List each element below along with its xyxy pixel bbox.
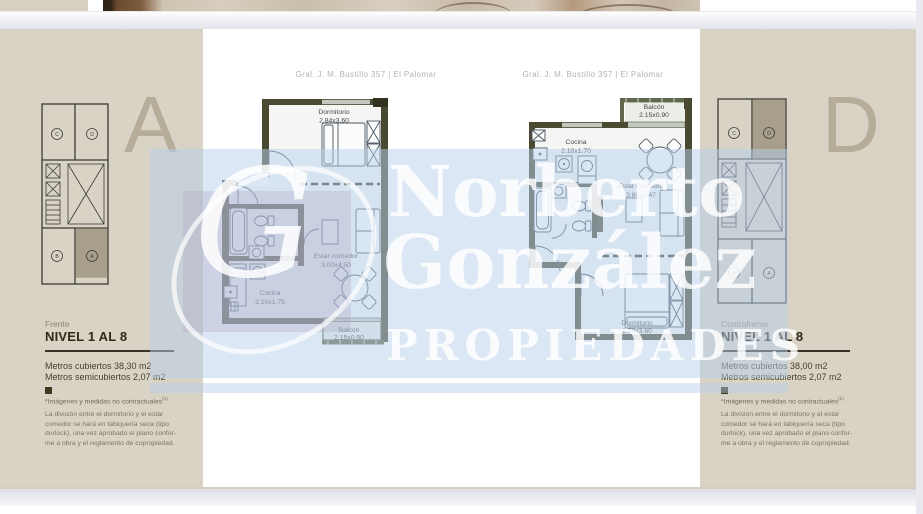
keyplan-unit-label: D bbox=[767, 131, 771, 137]
brochure-page: A bbox=[0, 0, 923, 514]
room-label-cocina: Cocina bbox=[565, 139, 586, 146]
legal-line: durlock), una vez aprobado el plano conf… bbox=[45, 429, 201, 439]
page-gap-band-bottom bbox=[0, 489, 923, 506]
keyplan-unit-label: C bbox=[732, 131, 736, 137]
window bbox=[562, 123, 602, 127]
window bbox=[322, 100, 370, 104]
keyplan-building-a: C D B A bbox=[38, 98, 112, 290]
legal-line: me a obra y el reglamento de copropiedad… bbox=[721, 439, 877, 449]
photo-fabric-line bbox=[573, 4, 683, 11]
room-label-balcon: Balcón bbox=[644, 104, 665, 111]
room-label-dormitorio: Dormitorio bbox=[318, 109, 350, 116]
area-covered: Metros cubiertos 38,30 m2 bbox=[45, 361, 152, 372]
disclaimer-note: *Imágenes y medidas no contractuales(1) bbox=[721, 396, 844, 405]
keyplan-unit-label: B bbox=[55, 254, 59, 260]
previous-slide-beige-edge bbox=[0, 0, 88, 11]
room-size-dormitorio: 2.84x3.60 bbox=[319, 118, 349, 125]
address-header-d: Gral. J. M. Bustillo 357 | El Palomar bbox=[493, 70, 693, 79]
legal-line: me a obra y el reglamento de copropiedad… bbox=[45, 439, 201, 449]
watermark-monogram: G bbox=[194, 150, 314, 300]
disclaimer-note: *Imágenes y medidas no contractuales(1) bbox=[45, 396, 168, 405]
keyplan-unit-label: C bbox=[55, 132, 59, 138]
page-gap-band bbox=[0, 11, 916, 30]
keyplan-unit-label: D bbox=[90, 132, 94, 138]
legal-line: durlock), una vez aprobado el plano conf… bbox=[721, 429, 877, 439]
legend-swatch bbox=[45, 387, 52, 394]
area-semicovered: Metros semicubiertos 2,07 m2 bbox=[45, 372, 166, 383]
disclaimer-text: *Imágenes y medidas no contractuales bbox=[721, 398, 838, 405]
legal-line: La división entre el dormitorio y el est… bbox=[721, 410, 877, 420]
watermark-subtitle: PROPIEDADES bbox=[386, 325, 806, 367]
level-label: NIVEL 1 AL 8 bbox=[45, 329, 127, 344]
legal-paragraph: La división entre el dormitorio y el est… bbox=[721, 410, 877, 448]
disclaimer-superscript: (1) bbox=[838, 396, 844, 401]
disclaimer-text: *Imágenes y medidas no contractuales bbox=[45, 398, 162, 405]
previous-slide-photo-edge bbox=[103, 0, 700, 11]
address-header-a: Gral. J. M. Bustillo 357 | El Palomar bbox=[266, 70, 466, 79]
legal-line: comedor se hará en tabiquería seca (tipo bbox=[45, 420, 201, 430]
watermark-strip bbox=[150, 383, 788, 393]
watermark-name-line2: González bbox=[383, 226, 757, 300]
disclaimer-superscript: (1) bbox=[162, 396, 168, 401]
orientation-label: Frente bbox=[45, 319, 70, 329]
legal-paragraph: La división entre el dormitorio y el est… bbox=[45, 410, 201, 448]
room-size-balcon: 2.15x0.90 bbox=[639, 112, 669, 119]
legal-line: comedor se hará en tabiquería seca (tipo bbox=[721, 420, 877, 430]
photo-fabric-line bbox=[433, 2, 513, 11]
legal-line: La división entre el dormitorio y el est… bbox=[45, 410, 201, 420]
watermark-name-line1: Norberto bbox=[388, 157, 745, 227]
page-right-margin bbox=[916, 0, 923, 514]
section-letter-d: D bbox=[822, 85, 880, 165]
